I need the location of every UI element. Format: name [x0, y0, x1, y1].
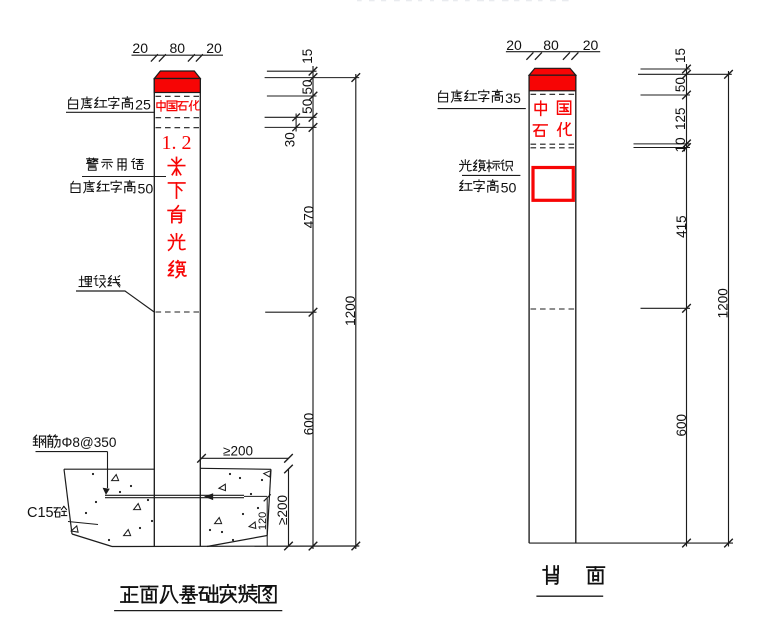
svg-text:30: 30	[283, 132, 298, 147]
svg-text:600: 600	[302, 413, 317, 436]
svg-text:80: 80	[543, 37, 559, 53]
svg-text:≥200: ≥200	[223, 443, 253, 458]
svg-text:35: 35	[505, 91, 521, 107]
svg-text:≥200: ≥200	[275, 495, 290, 525]
svg-text:50: 50	[138, 181, 154, 197]
svg-text:1200: 1200	[343, 296, 358, 326]
svg-text:50: 50	[501, 181, 517, 197]
svg-text:1. 2: 1. 2	[162, 132, 192, 154]
svg-text:80: 80	[170, 40, 186, 56]
svg-text:1200: 1200	[716, 288, 731, 318]
svg-text:50: 50	[300, 79, 315, 94]
svg-text:470: 470	[302, 206, 317, 229]
svg-text:600: 600	[674, 414, 689, 437]
svg-text:20: 20	[206, 40, 222, 56]
svg-text:20: 20	[132, 40, 148, 56]
svg-text:15: 15	[300, 49, 315, 64]
svg-text:25: 25	[135, 98, 151, 114]
svg-text:Φ8@350: Φ8@350	[62, 435, 117, 450]
svg-text:C15: C15	[27, 505, 54, 521]
svg-text:50: 50	[300, 99, 315, 114]
svg-text:10: 10	[673, 137, 688, 152]
svg-text:20: 20	[506, 37, 522, 53]
svg-text:15: 15	[673, 48, 688, 63]
svg-text:125: 125	[673, 107, 688, 130]
svg-text:50: 50	[673, 77, 688, 92]
svg-text:415: 415	[674, 215, 689, 238]
svg-text:20: 20	[583, 37, 599, 53]
svg-text:120: 120	[257, 512, 269, 530]
